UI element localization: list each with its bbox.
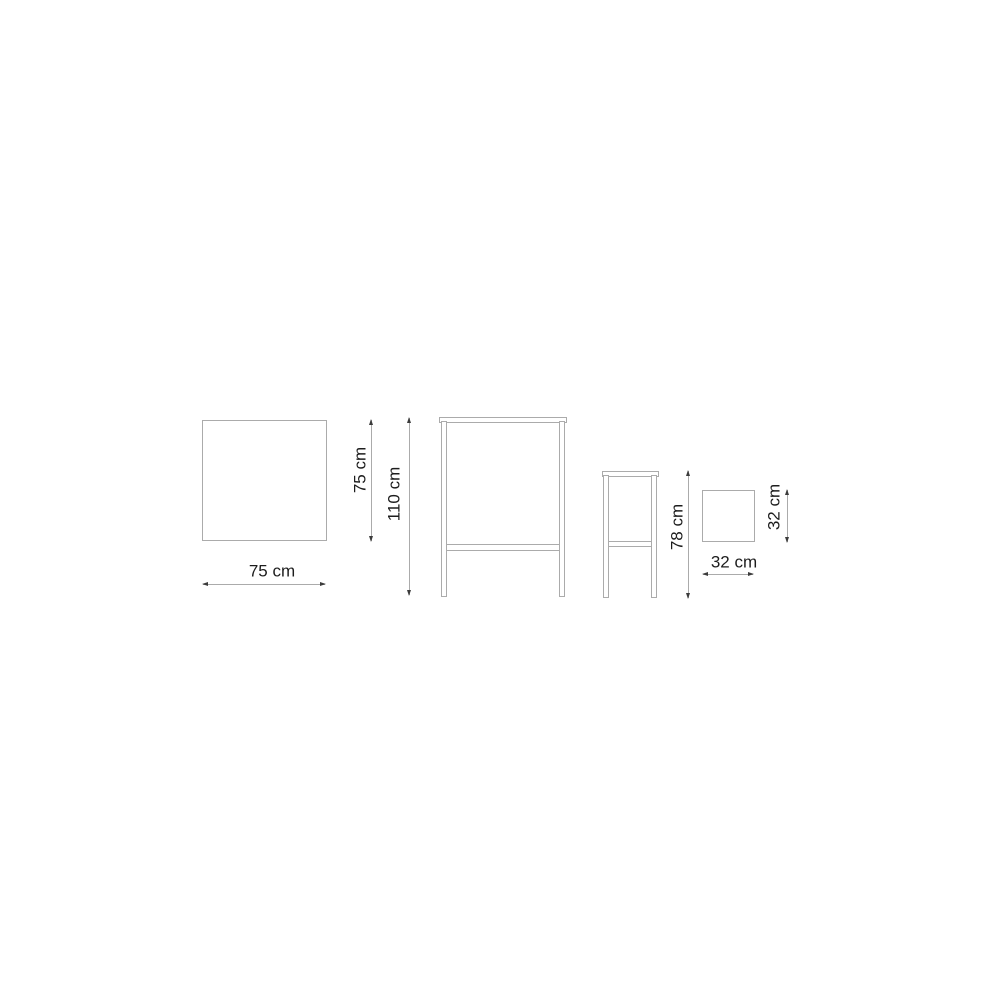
arrow-down-icon — [785, 537, 789, 543]
arrow-left-icon — [702, 572, 708, 576]
arrow-down-icon — [369, 536, 373, 542]
stool-depth-label: 32 cm — [766, 484, 783, 530]
stool-depth-dimension-line — [787, 490, 788, 542]
table-depth-label: 75 cm — [352, 447, 369, 493]
stool-width-dimension-line — [703, 574, 753, 575]
arrow-up-icon — [785, 489, 789, 495]
table-stretcher — [446, 544, 560, 551]
stool-height-label: 78 cm — [669, 504, 686, 550]
stool-height-dimension-line — [688, 471, 689, 598]
table-leg-right — [559, 421, 565, 597]
arrow-right-icon — [320, 582, 326, 586]
arrow-down-icon — [686, 593, 690, 599]
dimension-drawing: 75 cm 75 cm 110 cm 78 cm 32 cm 32 cm — [0, 0, 1000, 1000]
table-depth-dimension-line — [371, 420, 372, 541]
stool-width-label: 32 cm — [711, 554, 757, 571]
stool-top-view-outline — [702, 490, 755, 542]
stool-leg-right — [651, 475, 657, 598]
stool-leg-left — [603, 475, 609, 598]
table-leg-left — [441, 421, 447, 597]
table-width-label: 75 cm — [249, 563, 295, 580]
table-top-view-outline — [202, 420, 327, 541]
arrow-left-icon — [202, 582, 208, 586]
arrow-up-icon — [369, 419, 373, 425]
table-width-dimension-line — [203, 584, 325, 585]
arrow-up-icon — [686, 470, 690, 476]
table-height-dimension-line — [409, 418, 410, 595]
table-height-label: 110 cm — [386, 467, 403, 522]
table-top-edge — [439, 417, 567, 423]
arrow-down-icon — [407, 590, 411, 596]
stool-stretcher — [608, 541, 652, 547]
arrow-up-icon — [407, 417, 411, 423]
arrow-right-icon — [748, 572, 754, 576]
